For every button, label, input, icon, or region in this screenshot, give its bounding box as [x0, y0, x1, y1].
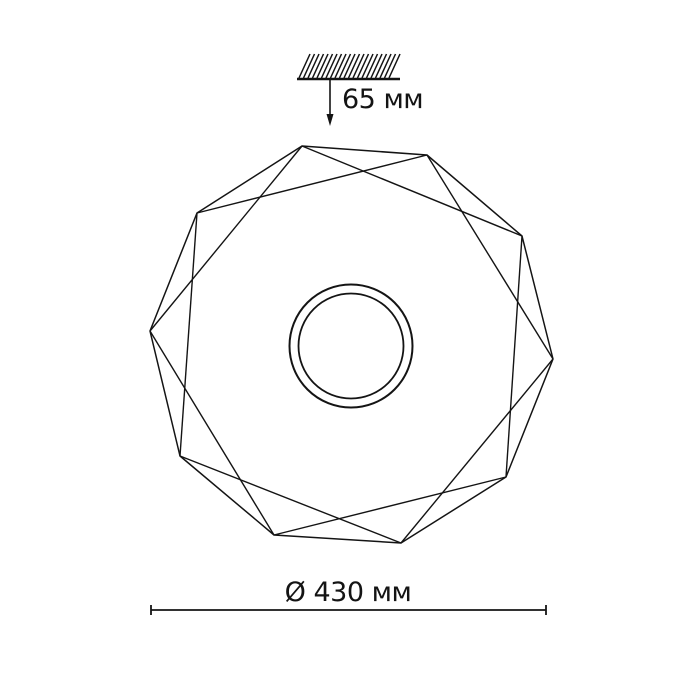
diagram-page: 65 мм Ø 430 мм — [0, 0, 700, 700]
diameter-dimension-label: Ø 430 мм — [285, 577, 412, 608]
facet-chord — [427, 155, 553, 359]
center-ring-inner — [299, 294, 404, 399]
offset-arrow — [327, 80, 334, 126]
facet-chord — [180, 456, 401, 543]
facet-chord — [401, 359, 553, 543]
ceiling-hatch-symbol — [297, 54, 400, 79]
facet-chord — [150, 331, 274, 535]
offset-arrow-head — [327, 114, 334, 126]
facet-chord — [197, 155, 427, 213]
facet-chord — [150, 146, 302, 331]
lamp-outline — [150, 146, 553, 543]
offset-dimension-label: 65 мм — [342, 84, 423, 115]
lamp-outline-group — [150, 146, 553, 543]
center-ring-outer — [290, 285, 413, 408]
lamp-dimension-diagram: 65 мм Ø 430 мм — [0, 0, 700, 700]
